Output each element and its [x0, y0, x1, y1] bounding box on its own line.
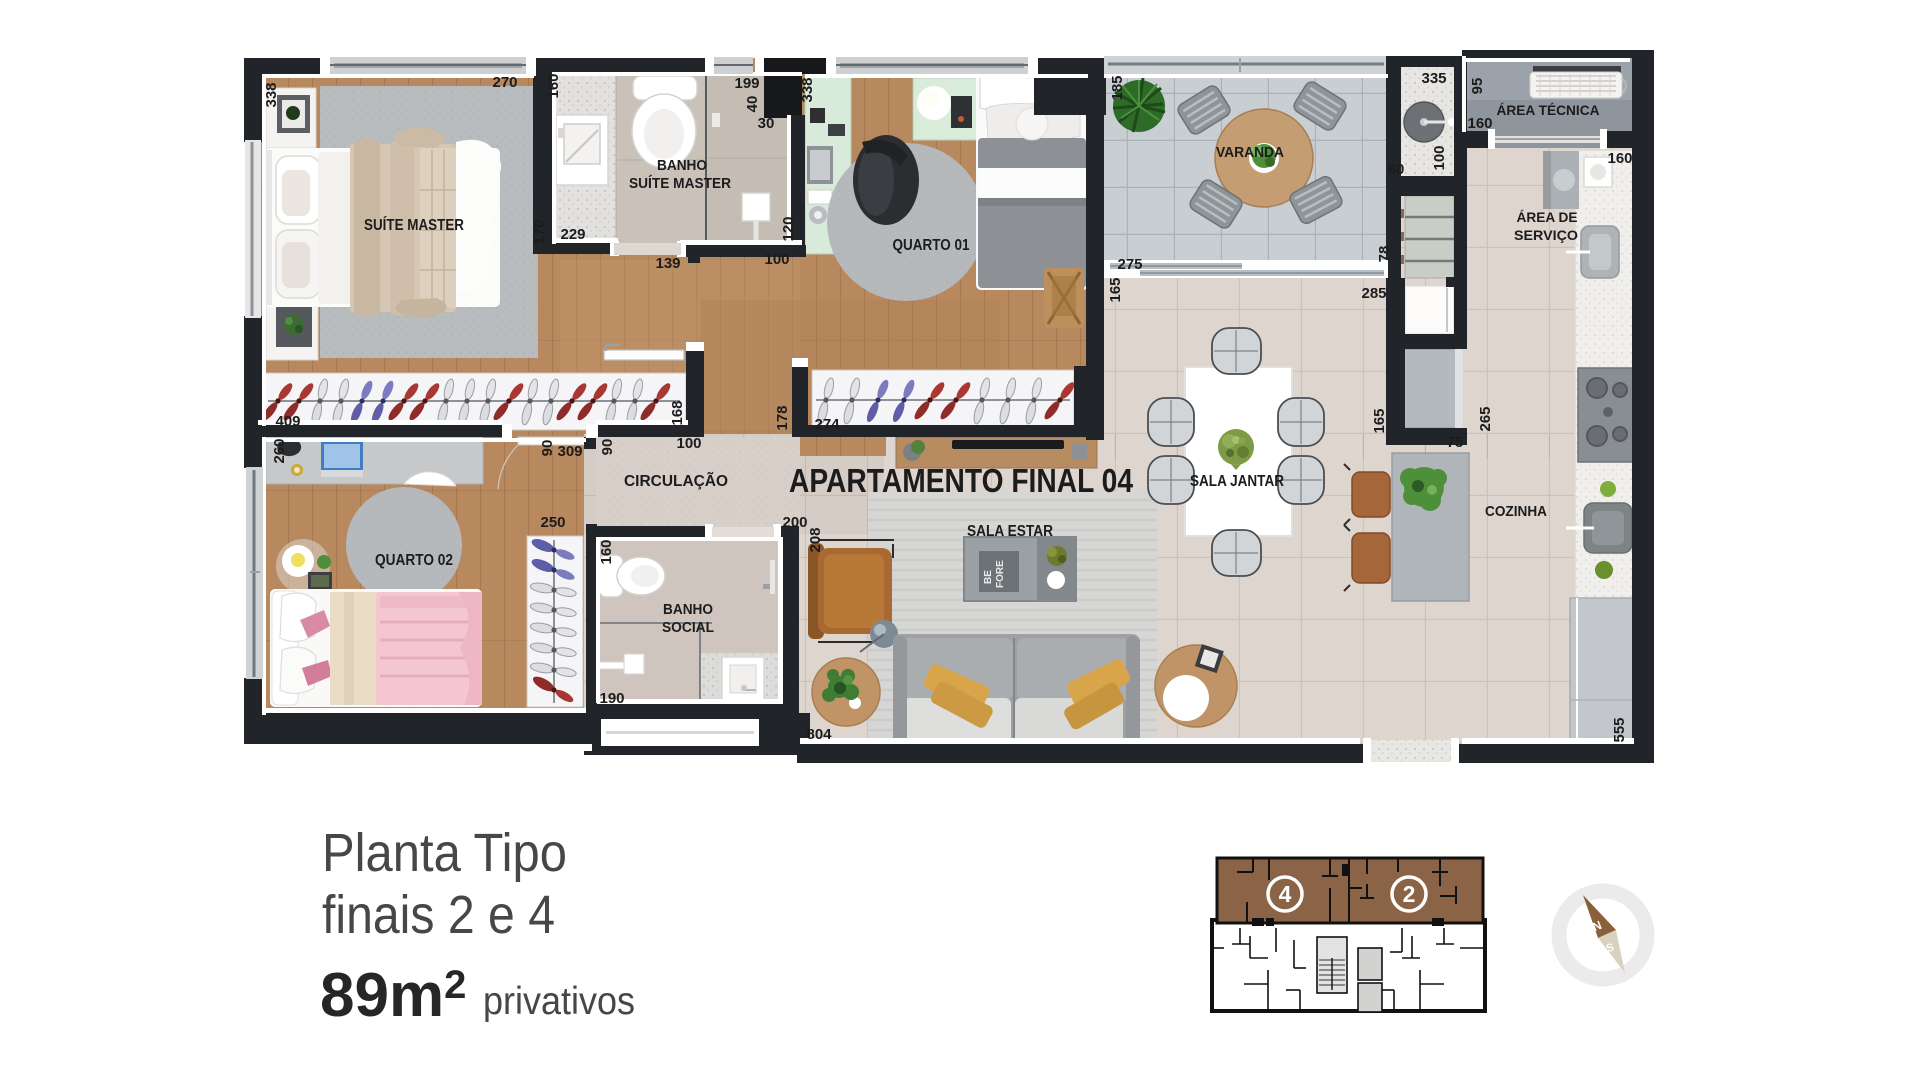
svg-text:90: 90: [599, 439, 616, 456]
svg-text:SERVIÇO: SERVIÇO: [1514, 227, 1578, 243]
svg-text:409: 409: [275, 413, 300, 430]
svg-text:229: 229: [560, 226, 585, 243]
svg-text:SALA JANTAR: SALA JANTAR: [1190, 473, 1284, 490]
svg-text:338: 338: [263, 82, 280, 107]
svg-text:120: 120: [780, 216, 797, 241]
svg-text:4: 4: [1279, 881, 1292, 907]
svg-text:165: 165: [1371, 408, 1388, 433]
svg-text:privativos: privativos: [483, 980, 635, 1023]
svg-text:260: 260: [271, 438, 288, 463]
svg-text:30: 30: [758, 115, 775, 132]
svg-text:ÁREA DE: ÁREA DE: [1517, 209, 1578, 225]
svg-text:555: 555: [1611, 717, 1628, 742]
svg-text:FORE: FORE: [995, 560, 1006, 588]
svg-text:QUARTO 02: QUARTO 02: [375, 552, 453, 569]
svg-text:100: 100: [764, 251, 789, 268]
svg-text:160: 160: [545, 73, 562, 98]
svg-text:338: 338: [799, 77, 816, 102]
svg-text:SUÍTE MASTER: SUÍTE MASTER: [364, 215, 464, 234]
svg-text:178: 178: [774, 405, 791, 430]
svg-text:BANHO: BANHO: [657, 158, 707, 174]
svg-text:170: 170: [531, 219, 548, 244]
svg-text:190: 190: [599, 690, 624, 707]
svg-text:Planta Tipo: Planta Tipo: [322, 823, 567, 883]
svg-text:165: 165: [1107, 277, 1124, 302]
svg-text:208: 208: [807, 527, 824, 552]
svg-text:2: 2: [1403, 881, 1416, 907]
svg-text:finais 2 e 4: finais 2 e 4: [322, 885, 555, 945]
svg-text:160: 160: [1467, 115, 1492, 132]
svg-text:185: 185: [1109, 75, 1126, 100]
svg-text:139: 139: [655, 255, 680, 272]
svg-text:100: 100: [1431, 145, 1448, 170]
svg-text:SUÍTE MASTER: SUÍTE MASTER: [629, 175, 731, 192]
svg-text:168: 168: [669, 400, 686, 425]
svg-text:309: 309: [557, 443, 582, 460]
svg-text:265: 265: [1477, 406, 1494, 431]
svg-text:SALA ESTAR: SALA ESTAR: [967, 523, 1053, 540]
svg-text:275: 275: [1117, 256, 1142, 273]
svg-text:199: 199: [734, 75, 759, 92]
svg-text:250: 250: [540, 514, 565, 531]
svg-text:95: 95: [1469, 78, 1486, 95]
svg-text:60: 60: [1388, 161, 1405, 178]
svg-text:335: 335: [1421, 70, 1446, 87]
svg-text:COZINHA: COZINHA: [1485, 503, 1547, 520]
svg-text:40: 40: [744, 96, 761, 113]
svg-text:160: 160: [598, 539, 615, 564]
svg-text:QUARTO 01: QUARTO 01: [893, 237, 970, 254]
svg-text:200: 200: [782, 514, 807, 531]
svg-text:274: 274: [814, 416, 840, 433]
svg-text:160: 160: [1607, 150, 1632, 167]
svg-text:SOCIAL: SOCIAL: [662, 620, 714, 636]
svg-text:ÁREA TÉCNICA: ÁREA TÉCNICA: [1497, 102, 1600, 118]
svg-text:75: 75: [1447, 434, 1464, 451]
svg-text:90: 90: [539, 440, 556, 457]
svg-text:CIRCULAÇÃO: CIRCULAÇÃO: [624, 472, 728, 490]
svg-text:804: 804: [806, 726, 832, 743]
svg-text:78: 78: [1376, 246, 1393, 263]
svg-text:BE: BE: [983, 570, 994, 584]
svg-text:BANHO: BANHO: [663, 602, 713, 618]
svg-text:VARANDA: VARANDA: [1216, 144, 1284, 161]
svg-text:100: 100: [676, 435, 701, 452]
svg-text:APARTAMENTO FINAL 04: APARTAMENTO FINAL 04: [789, 462, 1134, 499]
svg-text:270: 270: [492, 74, 517, 91]
svg-text:285: 285: [1361, 285, 1386, 302]
